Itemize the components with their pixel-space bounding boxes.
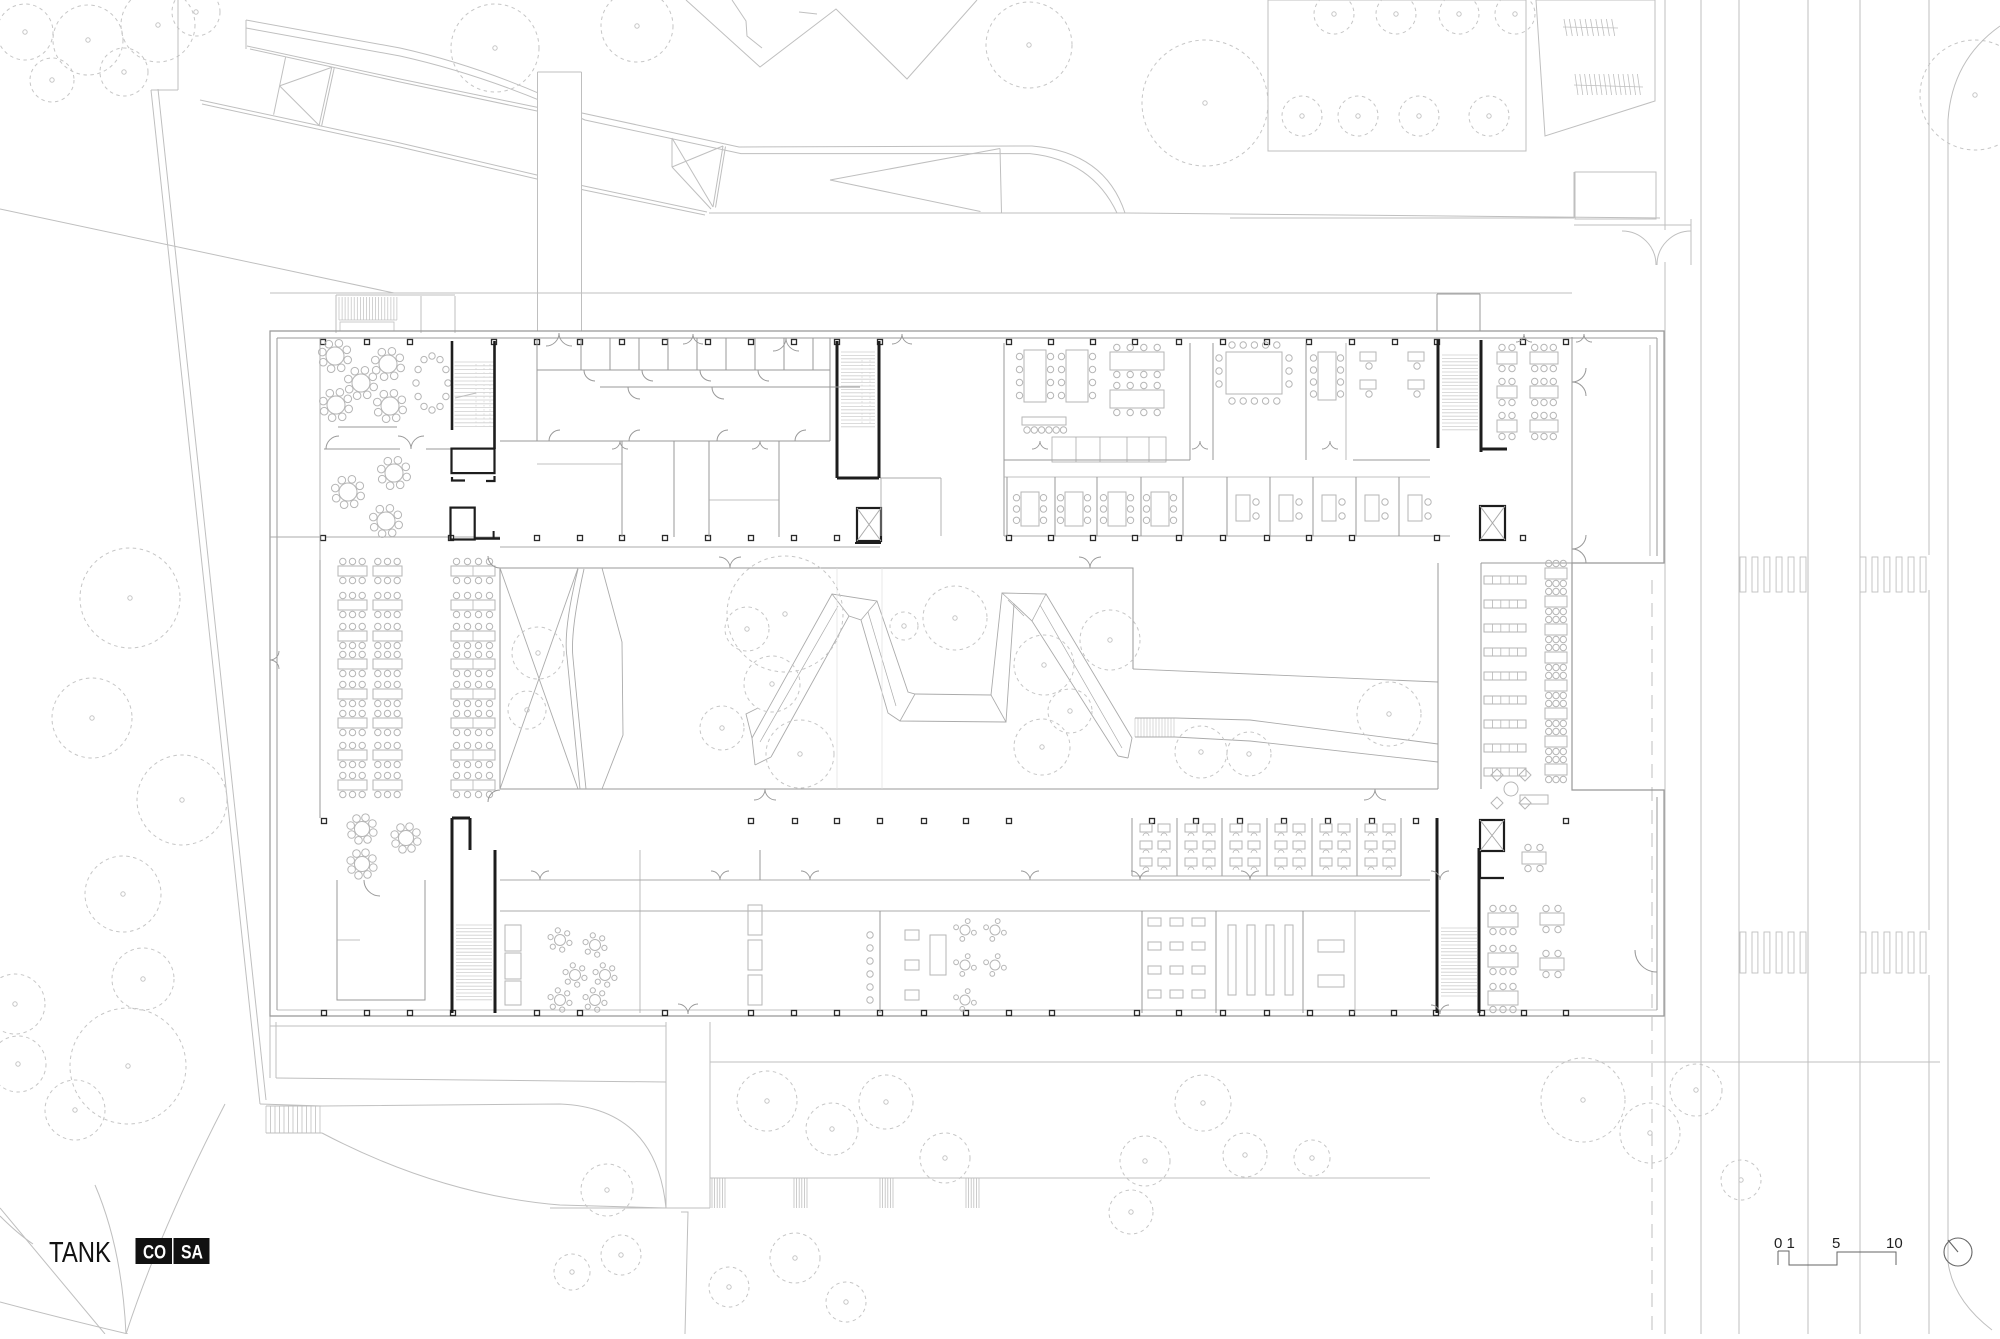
svg-text:10: 10	[1886, 1235, 1903, 1252]
svg-text:SA: SA	[181, 1243, 203, 1264]
svg-text:CO: CO	[143, 1243, 166, 1264]
svg-text:5: 5	[1832, 1235, 1840, 1252]
svg-text:TANK: TANK	[49, 1237, 112, 1269]
svg-text:0 1: 0 1	[1774, 1235, 1795, 1252]
